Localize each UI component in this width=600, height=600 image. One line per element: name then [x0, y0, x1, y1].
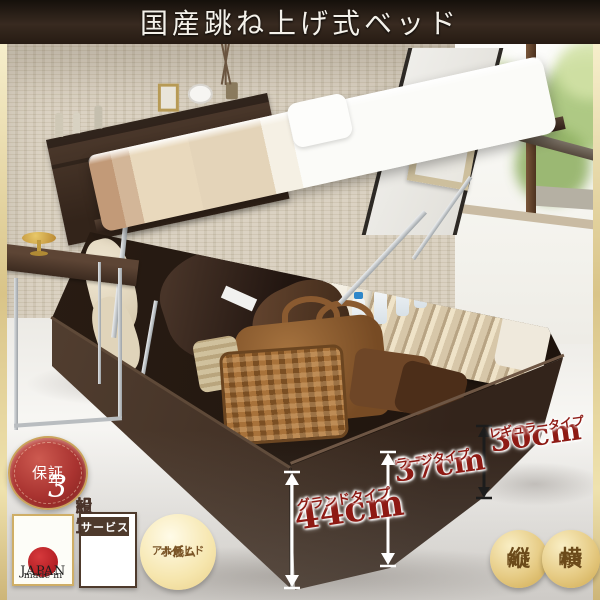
japan-text: JAPAN	[20, 565, 65, 580]
warranty-label: 保証	[32, 464, 64, 482]
side-table-leg	[118, 268, 122, 418]
photo-frame	[158, 84, 179, 112]
product-image: 44cm グランドタイプ 37cm ラージタイプ 30cm レギュラータイプ 3…	[0, 0, 600, 600]
title-banner: 国産跳ね上げ式ベッド	[0, 0, 600, 44]
made-in-japan-badge: made in JAPAN	[12, 514, 74, 586]
horizontal-opening-badge: 横 開き	[542, 530, 600, 588]
low-formaldehyde-badge: 低 ホルム アルデヒド	[140, 514, 216, 590]
product-title: 国産跳ね上げ式ベッド	[140, 2, 460, 42]
side-table-leg	[98, 262, 101, 384]
gold-border-right	[593, 44, 600, 600]
perfume-bottle	[94, 106, 102, 129]
assembly-service-badge: 組立 設置 サービス	[79, 512, 137, 588]
bottle-cap	[354, 292, 363, 299]
side-table-leg	[14, 278, 18, 430]
pedestal-dish-base	[30, 251, 48, 256]
vertical-opening-badge: 縦 開き	[490, 530, 548, 588]
assembly-badge-footer: サービス	[81, 517, 129, 536]
vase	[226, 82, 238, 99]
perfume-bottle	[73, 112, 80, 133]
perfume-bottle	[55, 113, 63, 137]
water-bottle	[374, 290, 387, 324]
alarm-clock	[188, 84, 213, 104]
gold-border-left	[0, 44, 7, 600]
